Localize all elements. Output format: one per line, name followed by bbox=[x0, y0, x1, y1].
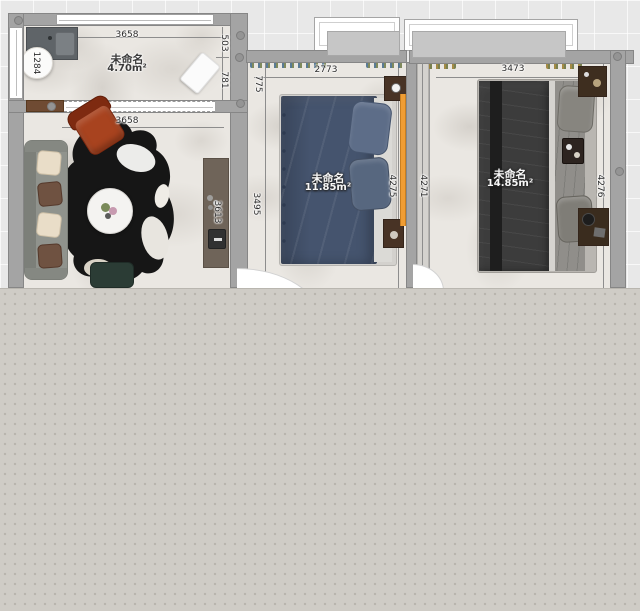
dim-bedroom-mid-right-inner: 4275 bbox=[387, 171, 397, 201]
lamp-icon bbox=[390, 231, 398, 239]
sofa-pillow bbox=[36, 212, 63, 239]
room-area-bedroom-right: 14.85m² bbox=[477, 178, 543, 189]
tray-dish-icon bbox=[574, 152, 580, 158]
flower-deco-icon bbox=[105, 213, 111, 219]
wall-joint-handle[interactable] bbox=[47, 102, 56, 111]
dim-bedroom-mid-right-outer: 4271 bbox=[418, 171, 428, 201]
lamp-icon bbox=[584, 72, 589, 77]
dim-living-top: 3658 bbox=[102, 116, 152, 126]
sofa-armrest-bottom bbox=[25, 268, 67, 279]
window-balcony-top[interactable] bbox=[56, 14, 214, 25]
ottoman[interactable] bbox=[90, 262, 134, 288]
device-slot bbox=[214, 238, 222, 241]
tray-dish-icon bbox=[566, 144, 572, 150]
wall-joint-handle[interactable] bbox=[14, 16, 23, 25]
bed-mid-tufting bbox=[282, 106, 286, 256]
window-balcony-left[interactable] bbox=[9, 27, 23, 99]
room-area-balcony: 4.70m² bbox=[97, 63, 157, 74]
canvas-bottom-overlay bbox=[0, 288, 640, 611]
nightstand[interactable] bbox=[578, 208, 609, 246]
coffee-table[interactable] bbox=[87, 188, 133, 234]
dim-line bbox=[254, 77, 400, 78]
sink-basin bbox=[55, 32, 75, 56]
bed-tray bbox=[562, 138, 584, 164]
dim-line bbox=[265, 63, 266, 288]
decor-bowl-icon bbox=[582, 213, 595, 226]
dim-bedroom-mid-left: 3495 bbox=[251, 189, 261, 219]
wood-shelf[interactable] bbox=[26, 100, 64, 112]
sofa-pillow bbox=[37, 181, 63, 207]
floor-plan-canvas[interactable]: 3658 503 781 1284 未命名 4.70m² 3658 3613 2… bbox=[0, 0, 640, 611]
wall-joint-handle[interactable] bbox=[613, 52, 622, 61]
clock-icon bbox=[391, 83, 401, 93]
sofa-backrest bbox=[25, 141, 36, 279]
bed-right-sheet bbox=[549, 81, 555, 271]
dim-balcony-right-lower: 781 bbox=[219, 68, 229, 92]
dim-bedroom-mid-left-upper: 775 bbox=[253, 72, 263, 96]
dim-balcony-left: 1284 bbox=[31, 48, 41, 78]
dim-balcony-top: 3658 bbox=[102, 30, 152, 40]
sofa-pillow bbox=[37, 243, 63, 269]
wall-joint-handle[interactable] bbox=[615, 167, 624, 176]
faucet-icon bbox=[48, 36, 52, 40]
dim-bedroom-right-top: 3473 bbox=[488, 64, 538, 74]
wall-joint-handle[interactable] bbox=[235, 53, 244, 62]
bay-sill-mid bbox=[327, 31, 400, 56]
bed-mid-pillow bbox=[347, 100, 393, 156]
dim-living-side: 3613 bbox=[212, 197, 222, 227]
dim-bedroom-right-side: 4276 bbox=[595, 171, 605, 201]
wall-bedroom-divider[interactable] bbox=[406, 62, 417, 288]
dim-tick bbox=[216, 57, 229, 58]
sofa-pillow bbox=[36, 150, 62, 176]
vase-icon bbox=[593, 79, 601, 87]
dim-balcony-right-upper: 503 bbox=[219, 31, 229, 55]
sofa[interactable] bbox=[24, 140, 68, 280]
media-device bbox=[208, 229, 226, 249]
decor-book-icon bbox=[593, 227, 605, 237]
wall-joint-handle[interactable] bbox=[236, 99, 245, 108]
bay-sill-right bbox=[412, 31, 566, 58]
wall-joint-handle[interactable] bbox=[236, 31, 245, 40]
nightstand[interactable] bbox=[578, 66, 607, 97]
dim-bedroom-mid-top: 2773 bbox=[301, 65, 351, 75]
room-area-bedroom-mid: 11.85m² bbox=[295, 182, 361, 193]
